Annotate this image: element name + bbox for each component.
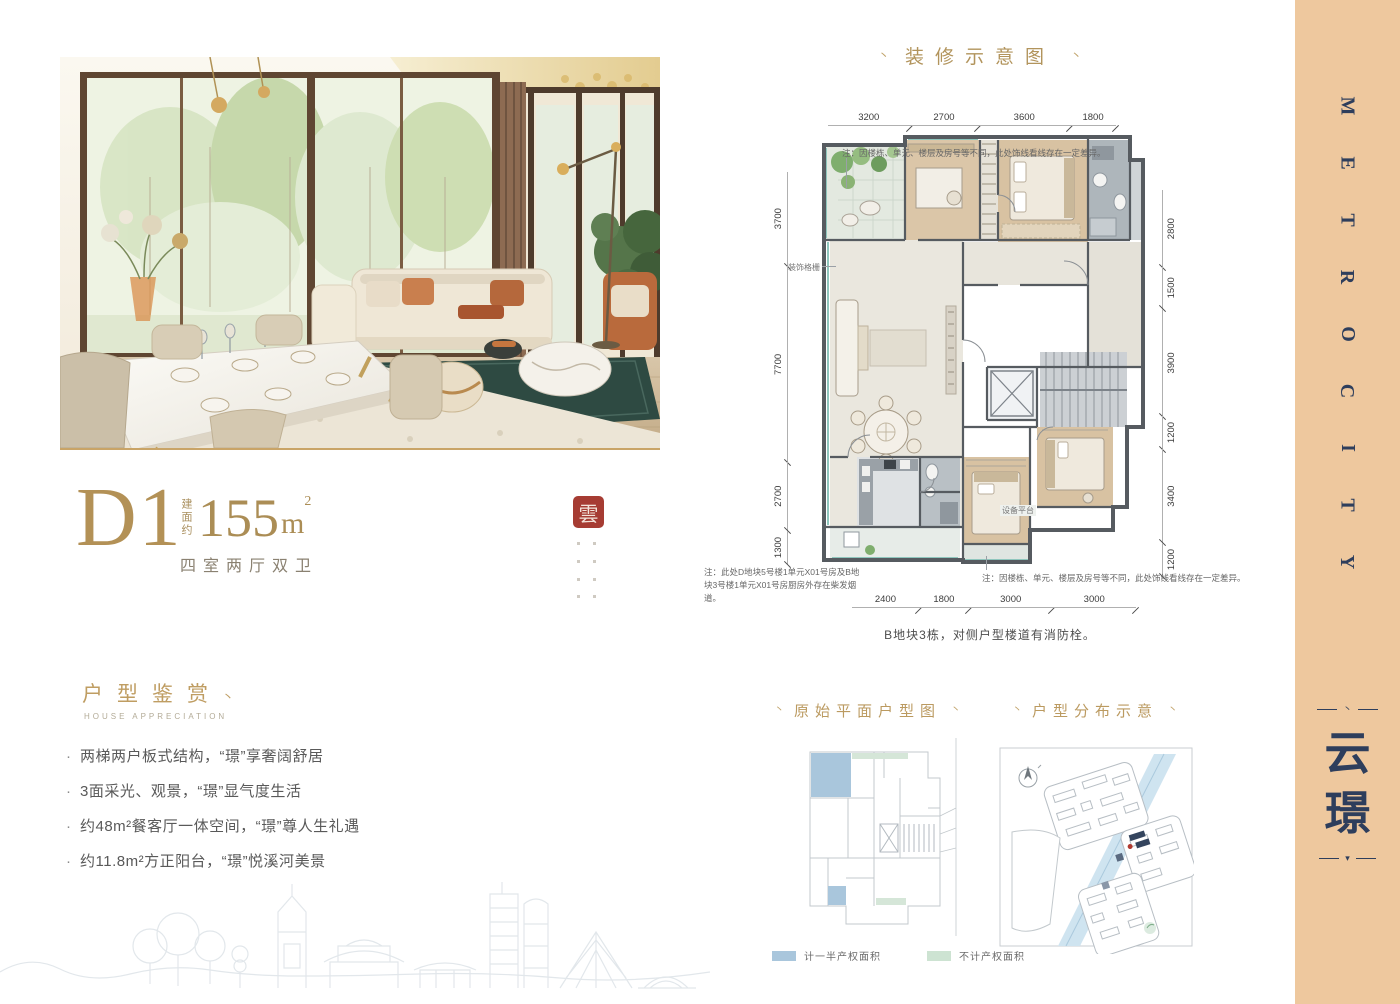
legend-label: 计一半产权面积 — [804, 948, 881, 963]
seal-side-script — [577, 542, 599, 604]
brand-letter: T — [1338, 213, 1358, 226]
dims-top: 3200270036001800 — [828, 110, 1116, 126]
brand-cn-char: 璟 — [1325, 784, 1371, 844]
feature-item: 约48m²餐客厅一体空间，“璟”尊人生礼遇 — [66, 818, 360, 836]
brand-letter: O — [1338, 326, 1358, 342]
leader-line — [986, 556, 987, 570]
brand-letter: I — [1337, 444, 1357, 452]
appreciation-title: 户型鉴赏丶 — [82, 678, 234, 708]
leader-line — [846, 158, 847, 188]
title-tick-icon: 丶 — [878, 50, 889, 62]
plan-title: 丶 装修示意图 丶 — [700, 42, 1260, 69]
floor-plan — [758, 100, 1188, 570]
original-plan-title: 丶 原始平面户型图 丶 — [770, 700, 965, 721]
legend-label: 不计产权面积 — [959, 948, 1025, 963]
feature-item: 两梯两户板式结构，“璟”享奢阔舒居 — [66, 748, 360, 766]
plan-caption: B地块3栋，对侧户型楼道有消防栓。 — [830, 626, 1150, 643]
title-tick-icon: 丶 — [1071, 50, 1082, 62]
brand-letter: Y — [1337, 555, 1357, 569]
plan-note-bottom-right: 注：因楼栋、单元、楼层及房号等不同，此处饰线看线存在一定差异。 — [982, 572, 1282, 585]
grille-label: 装饰格栅 — [788, 262, 820, 273]
area-unit: m2 — [281, 494, 311, 541]
appreciation-subtitle: HOUSE APPRECIATION — [84, 712, 227, 721]
legend: 计一半产权面积 不计产权面积 — [772, 948, 1025, 963]
brand-name-cn: 丶 云璟 ▾ — [1295, 695, 1400, 873]
legend-item: 计一半产权面积 — [772, 948, 881, 963]
seal-stamp-icon: 雲 — [573, 496, 604, 528]
sidebar: METROCITY 丶 云璟 ▾ — [1295, 0, 1400, 1004]
unit-layout-desc: 四室两厅双卫 — [180, 552, 318, 576]
equipment-platform-label: 设备平台 — [1000, 505, 1036, 516]
original-floor-plan — [788, 738, 968, 936]
skyline-art — [0, 854, 710, 1004]
area-value: 155 — [198, 494, 279, 543]
title-tick-icon: 丶 — [222, 690, 234, 704]
legend-swatch — [772, 951, 796, 961]
dims-bottom: 2400180030003000 — [852, 592, 1136, 608]
brand-letter: M — [1337, 97, 1357, 116]
plan-note-bottom-left: 注：此处D地块5号楼1单元X01号房及B地块3号楼1单元X01号房厨房外存在柴发… — [704, 566, 862, 606]
feature-item: 3面采光、观景，“璟”显气度生活 — [66, 783, 360, 801]
brand-letter: R — [1337, 270, 1357, 284]
brochure-page: D1 建面约 155 m2 四室两厅双卫 雲 户型鉴赏丶 HOUSE APPRE… — [0, 0, 1400, 1004]
site-plan — [998, 746, 1194, 954]
unit-area: 建面约 155 m2 — [178, 494, 311, 543]
distribution-title: 丶 户型分布示意 丶 — [1000, 700, 1190, 721]
dims-left: 3700770027001300 — [772, 172, 788, 564]
brand-cn-char: 云 — [1325, 724, 1371, 784]
unit-code: D1 — [76, 476, 183, 560]
ornament-top: 丶 — [1317, 705, 1378, 714]
ornament-bottom: ▾ — [1319, 854, 1376, 863]
legend-item: 不计产权面积 — [927, 948, 1025, 963]
hero-photo-art — [60, 57, 660, 448]
brand-letter: C — [1337, 384, 1357, 398]
brand-name-en: METROCITY — [1295, 96, 1400, 572]
leader-line — [822, 266, 836, 267]
legend-swatch — [927, 951, 951, 961]
hero-photo — [60, 57, 660, 450]
brand-letter: T — [1338, 498, 1358, 511]
brand-letter: E — [1338, 156, 1358, 169]
area-prefix: 建面约 — [178, 498, 194, 542]
plan-note-top: 注：因楼栋、单元、楼层及房号等不同，此处饰线看线存在一定差异。 — [842, 147, 1154, 160]
dims-right: 280015003900120034001200 — [1162, 190, 1178, 576]
